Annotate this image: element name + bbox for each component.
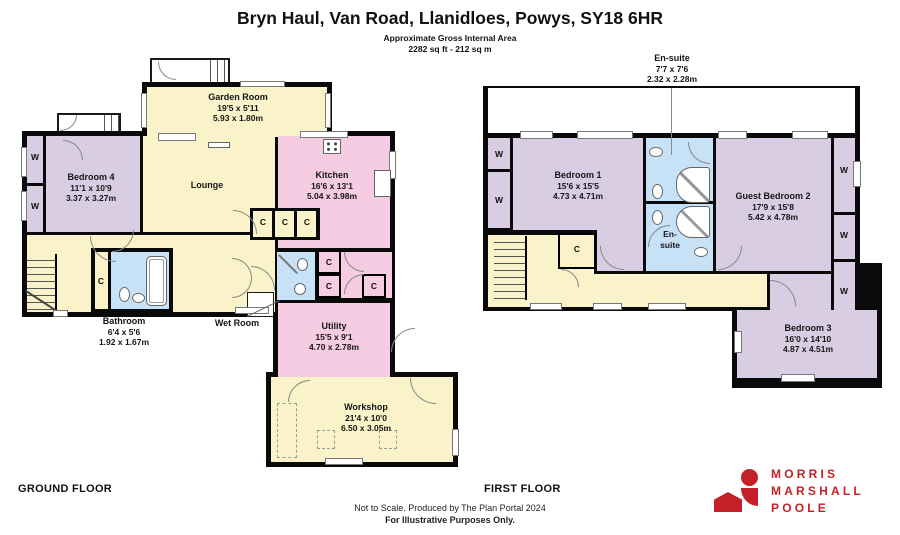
window xyxy=(593,303,622,310)
shower xyxy=(676,206,710,238)
sink xyxy=(649,147,663,157)
cupboard-marker: C xyxy=(371,281,377,291)
window xyxy=(530,303,562,310)
scale-note: Not to Scale. Produced by The Plan Porta… xyxy=(0,503,900,513)
cupboard-marker: C xyxy=(282,217,288,227)
window xyxy=(734,331,742,353)
label-guest-bedroom2: Guest Bedroom 2 17'9 x 15'8 5.42 x 4.78m xyxy=(735,191,810,223)
area-label: Approximate Gross Internal Area xyxy=(0,33,900,43)
label-garden-room: Garden Room 19'5 x 5'11 5.93 x 1.80m xyxy=(208,92,268,124)
wardrobe-marker: W xyxy=(31,152,39,162)
wardrobe-marker: W xyxy=(840,230,848,240)
window xyxy=(325,458,363,465)
first-floor-label: FIRST FLOOR xyxy=(484,483,561,495)
logo-text-line1: MORRIS xyxy=(771,467,838,481)
kitchen-sink xyxy=(374,170,391,197)
bathtub xyxy=(146,256,167,306)
window xyxy=(240,81,285,87)
logo-house-icon xyxy=(714,492,742,512)
label-ensuite-inner: En- suite xyxy=(660,229,680,250)
window xyxy=(21,147,27,177)
cupboard-marker: C xyxy=(326,257,332,267)
window xyxy=(141,93,147,128)
window xyxy=(577,131,633,139)
ground-floor-label: GROUND FLOOR xyxy=(18,483,112,495)
label-bedroom3: Bedroom 3 16'0 x 14'10 4.87 x 4.51m xyxy=(783,323,833,355)
wardrobe-marker: W xyxy=(495,195,503,205)
workshop-marker xyxy=(317,430,335,449)
area-value: 2282 sq ft - 212 sq m xyxy=(0,44,900,54)
label-utility: Utility 15'5 x 9'1 4.70 x 2.78m xyxy=(309,321,359,353)
stairs-ground xyxy=(27,254,57,312)
logo-text-line2: MARSHALL xyxy=(771,484,864,498)
window xyxy=(21,191,27,221)
label-wetroom: Wet Room xyxy=(215,318,259,329)
wardrobe-marker: W xyxy=(31,201,39,211)
stairs-first xyxy=(494,236,527,300)
wardrobe-cell xyxy=(834,138,855,212)
window xyxy=(853,161,861,187)
workshop-bench xyxy=(277,403,297,458)
hob-icon xyxy=(323,139,341,154)
purpose-note: For Illustrative Purposes Only. xyxy=(0,515,900,525)
window xyxy=(300,131,348,138)
callout-line xyxy=(671,88,672,155)
window xyxy=(325,93,331,128)
wardrobe-marker: W xyxy=(495,149,503,159)
wardrobe-marker: W xyxy=(840,286,848,296)
window xyxy=(792,131,828,139)
window xyxy=(158,133,196,141)
label-kitchen: Kitchen 16'6 x 13'1 5.04 x 3.98m xyxy=(307,170,357,202)
page-title: Bryn Haul, Van Road, Llanidloes, Powys, … xyxy=(0,8,900,29)
toilet xyxy=(297,258,308,271)
cupboard-marker: C xyxy=(260,217,266,227)
toilet xyxy=(652,184,663,199)
cupboard-marker: C xyxy=(304,217,310,227)
toilet xyxy=(119,287,130,302)
shower xyxy=(676,167,710,203)
label-bedroom4: Bedroom 4 11'1 x 10'9 3.37 x 3.27m xyxy=(66,172,116,204)
sink xyxy=(694,247,708,257)
wardrobe-marker: W xyxy=(840,165,848,175)
fireplace xyxy=(208,142,230,148)
cupboard-marker: C xyxy=(326,281,332,291)
logo-circle-icon xyxy=(741,469,758,486)
label-ensuite-callout: En-suite 7'7 x 7'6 2.32 x 2.28m xyxy=(647,53,697,85)
sink xyxy=(294,283,306,295)
cupboard-marker: C xyxy=(574,244,580,254)
label-workshop: Workshop 21'4 x 10'0 6.50 x 3.05m xyxy=(341,402,391,434)
toilet xyxy=(652,210,663,225)
window xyxy=(781,374,815,382)
floorplan-page: Bryn Haul, Van Road, Llanidloes, Powys, … xyxy=(0,0,900,535)
window xyxy=(718,131,747,139)
window xyxy=(520,131,553,139)
cupboard-marker: C xyxy=(98,276,104,286)
door-step xyxy=(53,310,68,317)
label-lounge: Lounge xyxy=(191,180,224,191)
sink xyxy=(132,293,145,303)
window xyxy=(648,303,686,310)
window xyxy=(452,429,459,456)
logo-text-line3: POOLE xyxy=(771,501,829,515)
label-bathroom: Bathroom 6'4 x 5'6 1.92 x 1.67m xyxy=(99,316,149,348)
label-bedroom1: Bedroom 1 15'6 x 15'5 4.73 x 4.71m xyxy=(553,170,603,202)
